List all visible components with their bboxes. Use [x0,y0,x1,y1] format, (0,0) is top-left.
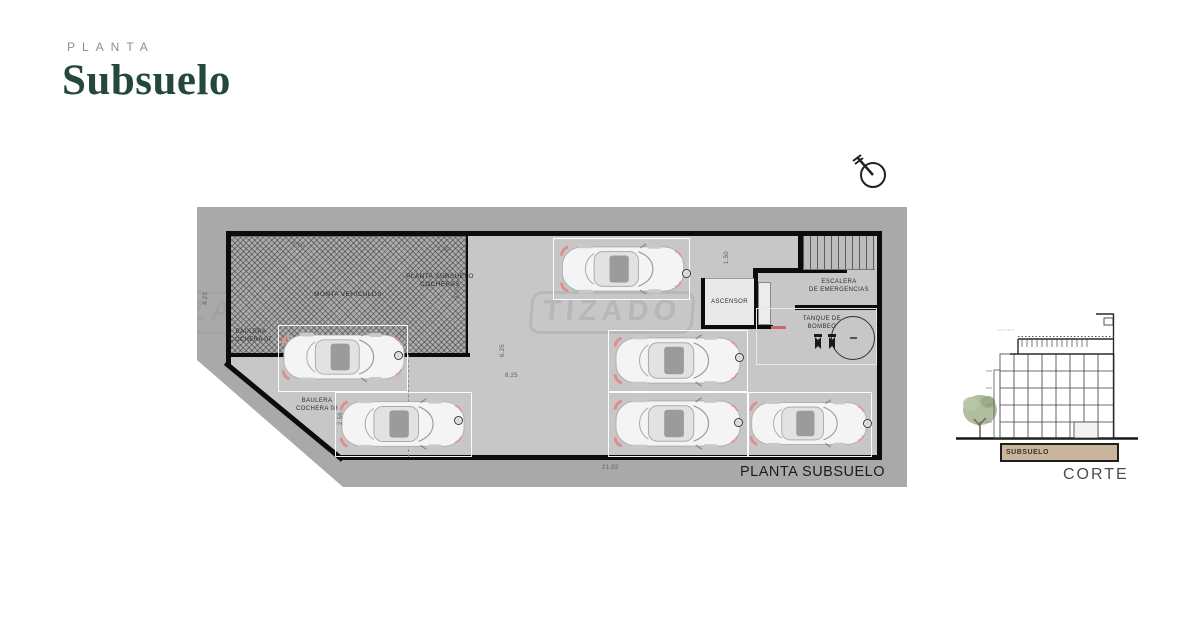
cocheras-label: PLANTA SUBSUELO COCHERAS [370,273,510,289]
wall-monta-right [466,236,468,355]
tree-icon [963,395,997,438]
dim-left-height: 4.23 [203,292,209,305]
car-top-view [559,243,687,295]
car-top-view [281,328,407,386]
plan-eyebrow: PLANTA [67,40,155,54]
dim-mid-height: 6.25 [500,344,506,357]
escalera-label: ESCALERA DE EMERGENCIAS [799,278,879,294]
dim-monta-width: 7.00 [292,243,305,249]
car-top-view [749,396,869,451]
dim-corridor: 1.50 [724,251,730,264]
north-arrow-icon [846,146,894,194]
basement-label: SUBSUELO [1002,449,1049,456]
building-section [956,310,1140,460]
car-top-view [613,333,743,388]
floor-plan: TIZADO TIZADO MONTA VEHICULOS ASCENSOR E… [197,207,907,487]
page: PLANTA Subsuelo [0,0,1195,625]
wall-right [877,231,882,460]
car-top-view [613,396,743,451]
page-title: Subsuelo [62,56,231,105]
wall-left [226,231,231,365]
plan-caption: PLANTA SUBSUELO [645,464,885,480]
dim-total-width: 21.02 [602,465,619,471]
dim-baulera-height: 2.56 [338,412,344,425]
baulera-07-label: BAULERA COCHERA 07 [215,328,287,344]
monta-vehiculos-label: MONTA VEHICULOS [240,291,456,299]
space-marker-1 [682,269,691,278]
basement-level: SUBSUELO [1000,443,1119,462]
space-marker-3 [454,416,463,425]
dim-cocheras-width: 7.00 [437,247,450,253]
wall-top [226,231,882,236]
dim-mid-width: 8.25 [505,373,518,379]
tank-mark [850,337,857,339]
space-marker-2 [394,351,403,360]
section-caption: CORTE [1063,466,1129,484]
dim-monta-depth: 3.05 [455,286,461,299]
stair-treads [803,236,875,270]
space-marker-4 [735,353,744,362]
ascensor-label: ASCENSOR [705,298,754,306]
space-marker-5 [734,418,743,427]
pump-icons [811,331,839,353]
car-top-view [339,396,467,452]
space-marker-6 [863,419,872,428]
